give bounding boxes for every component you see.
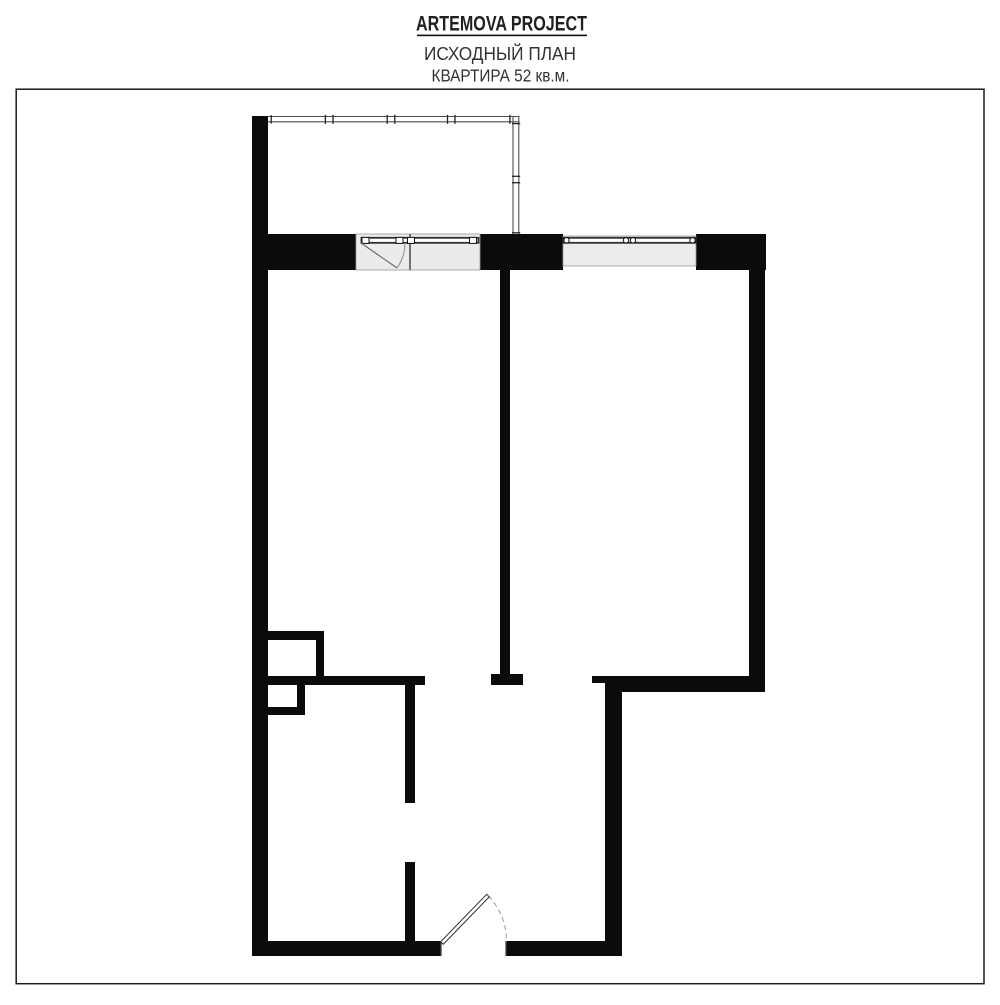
- svg-text:ARTEMOVA PROJECT: ARTEMOVA PROJECT: [416, 11, 587, 35]
- svg-text:КВАРТИРА 52 кв.м.: КВАРТИРА 52 кв.м.: [432, 66, 570, 86]
- svg-text:ИСХОДНЫЙ ПЛАН: ИСХОДНЫЙ ПЛАН: [424, 43, 576, 64]
